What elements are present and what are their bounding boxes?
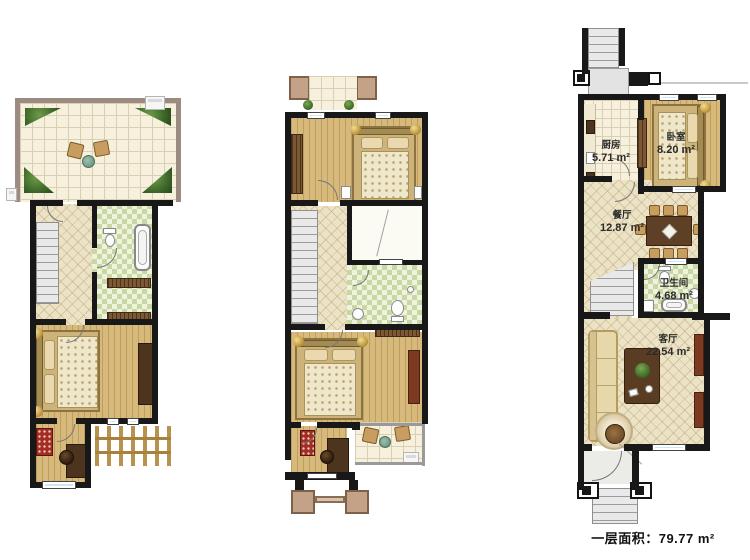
patio-chair bbox=[362, 427, 380, 445]
wall bbox=[692, 313, 730, 320]
plant-icon bbox=[25, 108, 61, 126]
floor-plan-middle bbox=[283, 72, 463, 524]
pergola-rail bbox=[95, 437, 171, 440]
area-caption: 一层面积：79.77 m² bbox=[573, 528, 733, 547]
headboard bbox=[354, 128, 414, 135]
tv-cabinet bbox=[408, 350, 420, 404]
staircase bbox=[36, 222, 59, 304]
wall bbox=[36, 319, 66, 325]
ceiling-line bbox=[376, 210, 389, 257]
side-cabinet bbox=[694, 392, 704, 428]
patio-table bbox=[379, 436, 391, 448]
room-name: 卧室 bbox=[652, 132, 700, 144]
pillow bbox=[387, 137, 409, 149]
shower-head bbox=[407, 286, 414, 293]
wall bbox=[577, 74, 585, 82]
toilet-tank bbox=[391, 316, 404, 322]
wall bbox=[422, 112, 428, 424]
toilet bbox=[105, 234, 115, 247]
wall bbox=[619, 28, 625, 66]
wall bbox=[632, 451, 639, 490]
wardrobe bbox=[138, 343, 153, 405]
pillow bbox=[304, 349, 328, 361]
window bbox=[672, 186, 696, 193]
balcony-pillar bbox=[356, 76, 377, 100]
wall bbox=[285, 422, 301, 428]
sink bbox=[352, 308, 364, 320]
pergola bbox=[95, 426, 171, 466]
pillow bbox=[361, 137, 383, 149]
room-area: 4.68 m² bbox=[646, 290, 702, 304]
floor-plan-right: 厨房 5.71 m² 卧室 8.20 m² 餐厅 12.87 m² 卫生间 4.… bbox=[573, 28, 750, 552]
kitchen-appliance bbox=[586, 120, 595, 134]
wardrobe bbox=[291, 134, 303, 194]
wall bbox=[317, 422, 354, 428]
cabinet bbox=[107, 278, 151, 288]
wall bbox=[578, 444, 592, 451]
window bbox=[307, 112, 325, 119]
quilt bbox=[57, 336, 98, 408]
wall bbox=[30, 418, 57, 424]
wall bbox=[92, 272, 97, 325]
wall bbox=[92, 204, 97, 248]
quilt bbox=[304, 363, 356, 416]
bedpost bbox=[293, 336, 304, 347]
patio-table bbox=[82, 155, 95, 168]
pillow bbox=[44, 374, 55, 404]
room-name: 餐厅 bbox=[596, 210, 648, 222]
paper bbox=[628, 388, 639, 397]
window bbox=[665, 258, 687, 265]
plate bbox=[645, 385, 653, 393]
balcony-rail bbox=[315, 496, 345, 503]
wall bbox=[285, 112, 291, 460]
window bbox=[652, 444, 686, 451]
wall bbox=[345, 324, 428, 330]
wall bbox=[152, 200, 158, 424]
wall bbox=[584, 176, 612, 182]
bedpost bbox=[700, 102, 711, 113]
quilt bbox=[361, 151, 409, 199]
room-label-kitchen: 厨房 5.71 m² bbox=[583, 140, 639, 166]
terrace bbox=[15, 98, 181, 202]
bedpost bbox=[410, 124, 421, 135]
wall bbox=[629, 72, 648, 86]
window bbox=[107, 418, 119, 425]
floor-plan-sheet: 厨房 5.71 m² 卧室 8.20 m² 餐厅 12.87 m² 卫生间 4.… bbox=[0, 0, 750, 560]
bed bbox=[295, 338, 363, 420]
balcony-wall bbox=[355, 462, 425, 465]
headboard bbox=[36, 332, 43, 410]
wall bbox=[285, 324, 325, 330]
wall bbox=[720, 94, 726, 192]
wall bbox=[582, 28, 588, 74]
balcony-wall bbox=[422, 424, 425, 466]
nightstand bbox=[341, 186, 351, 199]
dining-chair bbox=[649, 205, 660, 216]
wall bbox=[295, 480, 304, 490]
wall bbox=[704, 318, 710, 446]
patio-chair bbox=[66, 141, 84, 159]
balcony-pillar bbox=[289, 76, 310, 100]
bed bbox=[352, 126, 416, 202]
wall bbox=[347, 206, 352, 264]
window bbox=[697, 94, 717, 101]
toilet bbox=[391, 300, 404, 316]
desk-chair bbox=[320, 450, 334, 464]
window bbox=[379, 259, 403, 265]
plant-icon bbox=[24, 167, 54, 193]
plant-icon bbox=[142, 167, 172, 193]
wall bbox=[686, 444, 710, 451]
patio-chair bbox=[394, 425, 411, 442]
plant-icon bbox=[635, 363, 650, 378]
void-room bbox=[352, 206, 422, 260]
wall bbox=[85, 319, 152, 325]
nightstand bbox=[414, 186, 422, 199]
pillow bbox=[332, 349, 356, 361]
room-label-bedroom: 卧室 8.20 m² bbox=[652, 132, 700, 158]
tag-icon bbox=[145, 96, 165, 110]
wall bbox=[578, 312, 610, 319]
room-label-living: 客厅 22.54 m² bbox=[636, 334, 700, 360]
wall bbox=[349, 480, 358, 490]
balcony-pillar bbox=[291, 490, 315, 514]
balcony-pillar bbox=[345, 490, 369, 514]
window bbox=[375, 112, 391, 119]
wall bbox=[340, 200, 428, 206]
wall bbox=[285, 200, 318, 206]
plant-icon bbox=[344, 100, 354, 110]
desk-chair bbox=[59, 450, 74, 465]
room-name: 客厅 bbox=[636, 334, 700, 346]
staircase bbox=[291, 210, 318, 324]
rug-pattern bbox=[605, 424, 625, 444]
plant-icon bbox=[135, 108, 171, 126]
wall bbox=[624, 444, 652, 451]
pergola-rail bbox=[95, 451, 171, 454]
wall bbox=[30, 200, 36, 488]
room-label-bathroom: 卫生间 4.68 m² bbox=[646, 278, 702, 304]
bathtub bbox=[134, 224, 151, 271]
wall bbox=[352, 422, 360, 430]
wall bbox=[85, 424, 91, 488]
entry-stairs bbox=[588, 28, 619, 68]
bedpost bbox=[357, 336, 368, 347]
balcony-wall bbox=[360, 423, 422, 426]
bedpost bbox=[350, 124, 361, 135]
window bbox=[42, 481, 76, 489]
step-line bbox=[648, 82, 748, 84]
room-name: 卫生间 bbox=[646, 278, 702, 290]
patio-chair bbox=[93, 140, 110, 157]
plant-icon bbox=[303, 100, 313, 110]
pillar-pad bbox=[648, 72, 661, 85]
room-name: 厨房 bbox=[583, 140, 639, 152]
wall bbox=[635, 486, 644, 495]
dining-chair bbox=[677, 205, 688, 216]
floor-plan-left bbox=[15, 96, 185, 496]
red-armchair bbox=[36, 428, 53, 456]
room-area: 8.20 m² bbox=[652, 144, 700, 158]
pillow bbox=[44, 340, 55, 370]
window bbox=[659, 94, 679, 101]
dining-chair bbox=[663, 205, 674, 216]
table-centerpiece bbox=[662, 224, 678, 240]
wall bbox=[638, 100, 644, 120]
window bbox=[307, 473, 337, 479]
tag-icon bbox=[6, 188, 17, 201]
wall bbox=[582, 486, 591, 495]
room-area: 5.71 m² bbox=[583, 152, 639, 166]
room-area: 22.54 m² bbox=[636, 346, 700, 360]
window bbox=[127, 418, 139, 425]
dining-table bbox=[646, 216, 692, 246]
room-area: 12.87 m² bbox=[596, 222, 648, 236]
room-label-dining: 餐厅 12.87 m² bbox=[596, 210, 648, 236]
